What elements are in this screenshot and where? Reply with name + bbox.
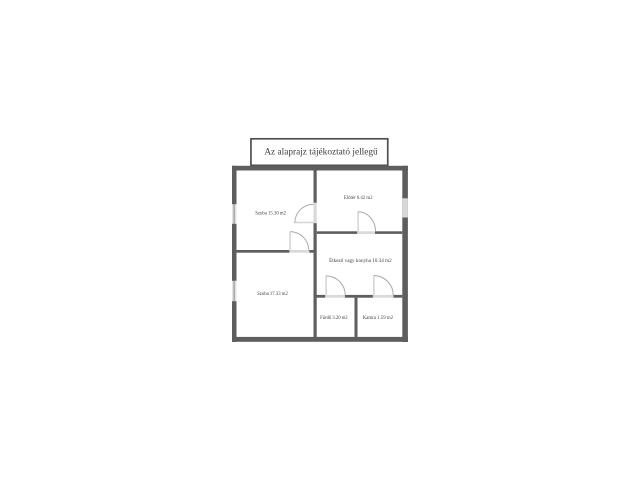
svg-text:Előtér 6.42 m2: Előtér 6.42 m2 bbox=[344, 196, 373, 201]
svg-text:Fürdő 3.20 m2: Fürdő 3.20 m2 bbox=[320, 316, 348, 321]
svg-text:Szoba 15.30 m2: Szoba 15.30 m2 bbox=[255, 211, 286, 216]
svg-text:Kamra 1.59 m2: Kamra 1.59 m2 bbox=[363, 316, 394, 321]
svg-text:Az alaprajz tájékoztató jelleg: Az alaprajz tájékoztató jellegű bbox=[264, 148, 378, 158]
svg-text:Étkező vagy konyha 10.34 m2: Étkező vagy konyha 10.34 m2 bbox=[329, 258, 392, 264]
svg-text:Szoba 17.33 m2: Szoba 17.33 m2 bbox=[257, 292, 288, 297]
